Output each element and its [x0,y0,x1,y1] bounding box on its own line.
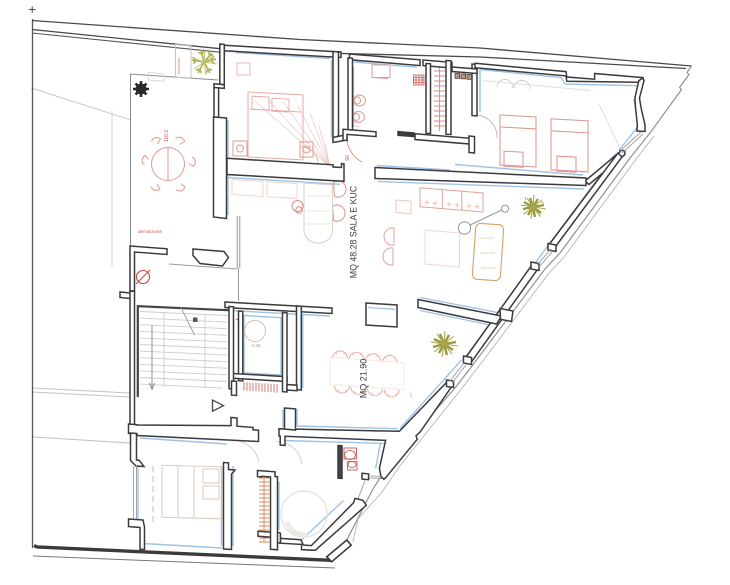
svg-text:MQ 21.90: MQ 21.90 [359,359,369,399]
svg-text:110.2: 110.2 [164,130,170,142]
svg-text:demolizione: demolizione [138,229,163,234]
svg-text:90: 90 [345,155,351,161]
svg-text:montante: montante [176,57,181,74]
svg-text:0.45: 0.45 [252,343,261,348]
svg-text:MQ 48.28 SALA E KUC: MQ 48.28 SALA E KUC [349,185,359,278]
